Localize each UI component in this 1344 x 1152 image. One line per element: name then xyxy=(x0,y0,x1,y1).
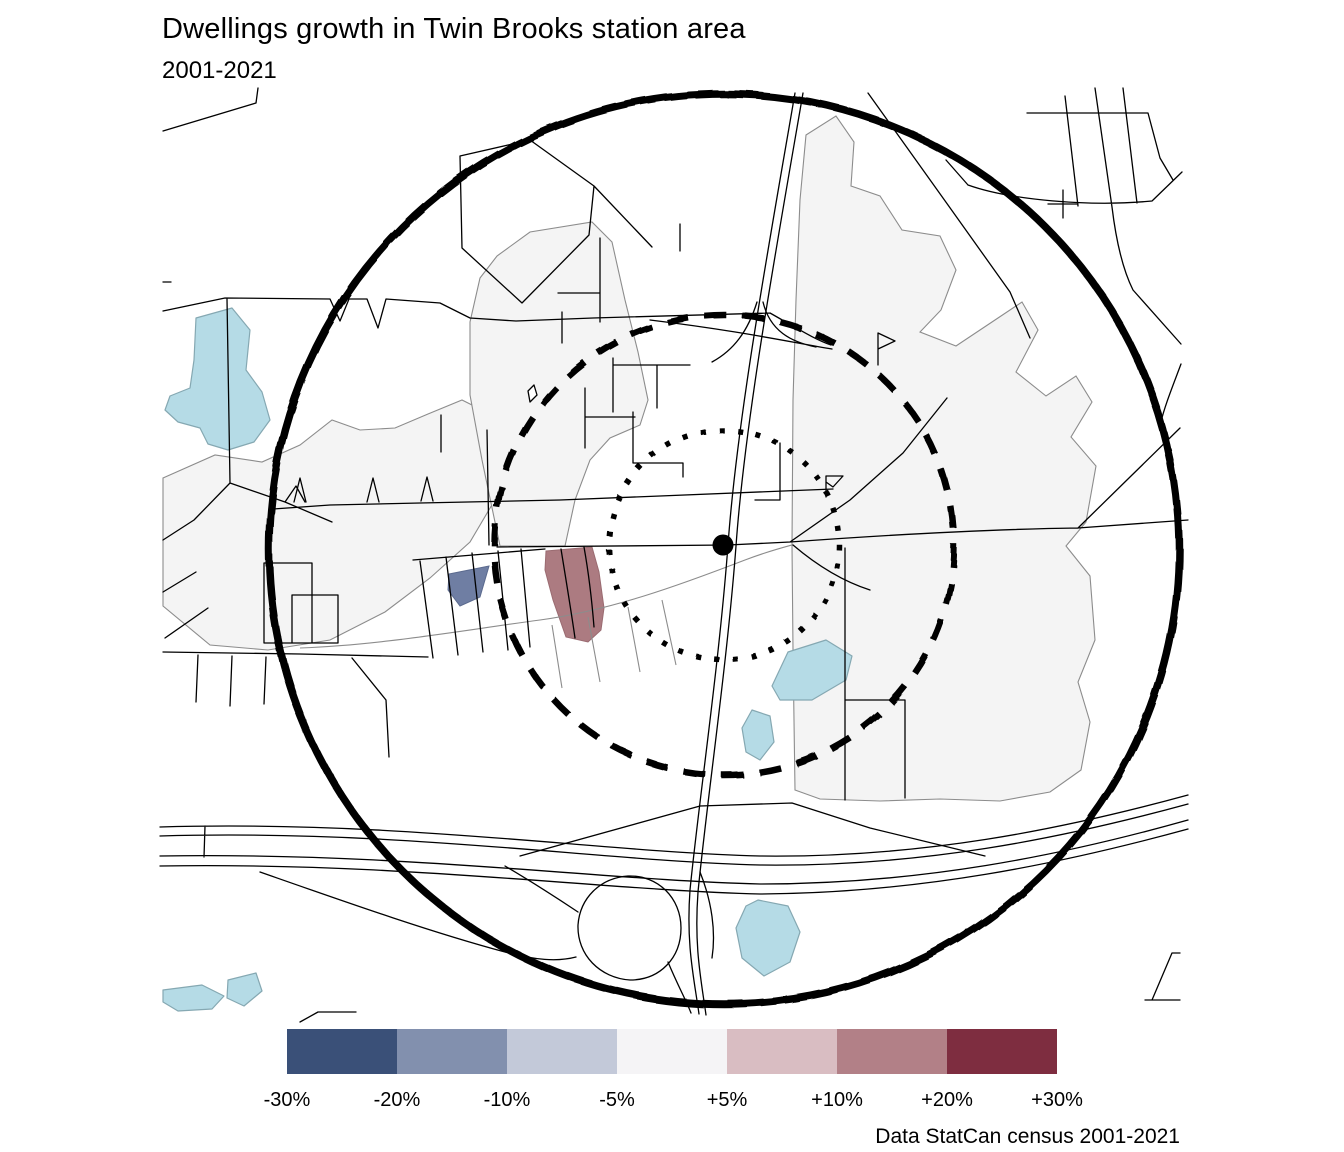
legend-break-label: +30% xyxy=(1031,1089,1083,1112)
declining-tract xyxy=(448,566,489,606)
tract-east xyxy=(792,116,1096,801)
legend-break-label: +5% xyxy=(707,1089,748,1112)
legend-break-label: -10% xyxy=(484,1089,531,1112)
legend-labels: -30%-20%-10%-5%+5%+10%+20%+30% xyxy=(287,1089,1057,1115)
legend-swatch-6 xyxy=(947,1029,1057,1074)
census-tracts xyxy=(163,116,1096,801)
lake-northwest xyxy=(165,308,270,450)
growing-tract xyxy=(545,547,604,642)
legend-swatch-4 xyxy=(727,1029,837,1074)
legend-break-label: -20% xyxy=(374,1089,421,1112)
legend-break-label: +20% xyxy=(921,1089,973,1112)
lake-southwest-a xyxy=(163,985,224,1011)
legend-swatch-3 xyxy=(617,1029,727,1074)
legend-break-label: +10% xyxy=(811,1089,863,1112)
south-edge-roads xyxy=(300,953,1180,1022)
legend-break-label: -5% xyxy=(599,1089,635,1112)
lake-south xyxy=(736,900,800,976)
main-ns-road xyxy=(689,93,803,1015)
growth-tracts xyxy=(448,547,604,642)
station-point xyxy=(713,535,734,556)
legend-swatch-5 xyxy=(837,1029,947,1074)
station-area-map xyxy=(0,0,1344,1152)
data-source-caption: Data StatCan census 2001-2021 xyxy=(875,1125,1180,1149)
legend-swatch-0 xyxy=(287,1029,397,1074)
lake-middle-small xyxy=(742,710,774,760)
legend-swatch-1 xyxy=(397,1029,507,1074)
legend-swatch-2 xyxy=(507,1029,617,1074)
lake-southwest-b xyxy=(227,973,262,1006)
legend-colorbar xyxy=(287,1029,1057,1074)
legend-break-label: -30% xyxy=(264,1089,311,1112)
